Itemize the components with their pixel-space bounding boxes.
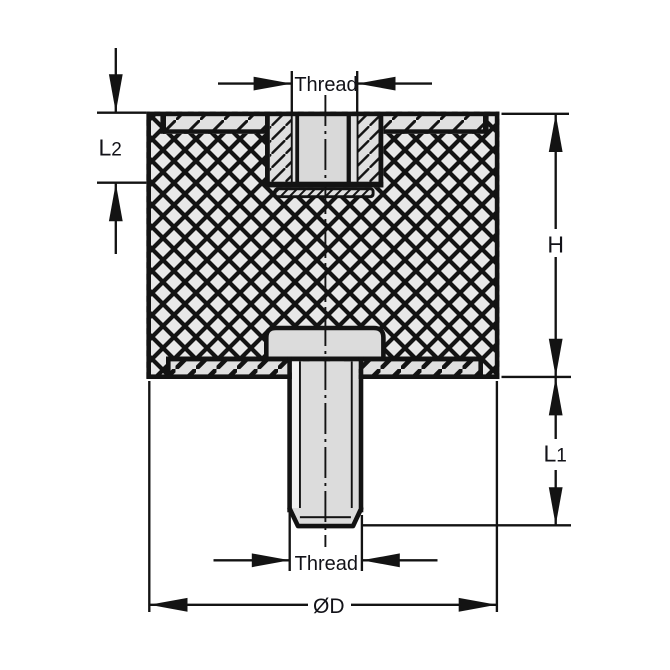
svg-text:Thread: Thread — [294, 74, 357, 96]
svg-text:ØD: ØD — [313, 595, 345, 618]
svg-text:Thread: Thread — [295, 553, 358, 575]
svg-text:H: H — [547, 232, 564, 258]
